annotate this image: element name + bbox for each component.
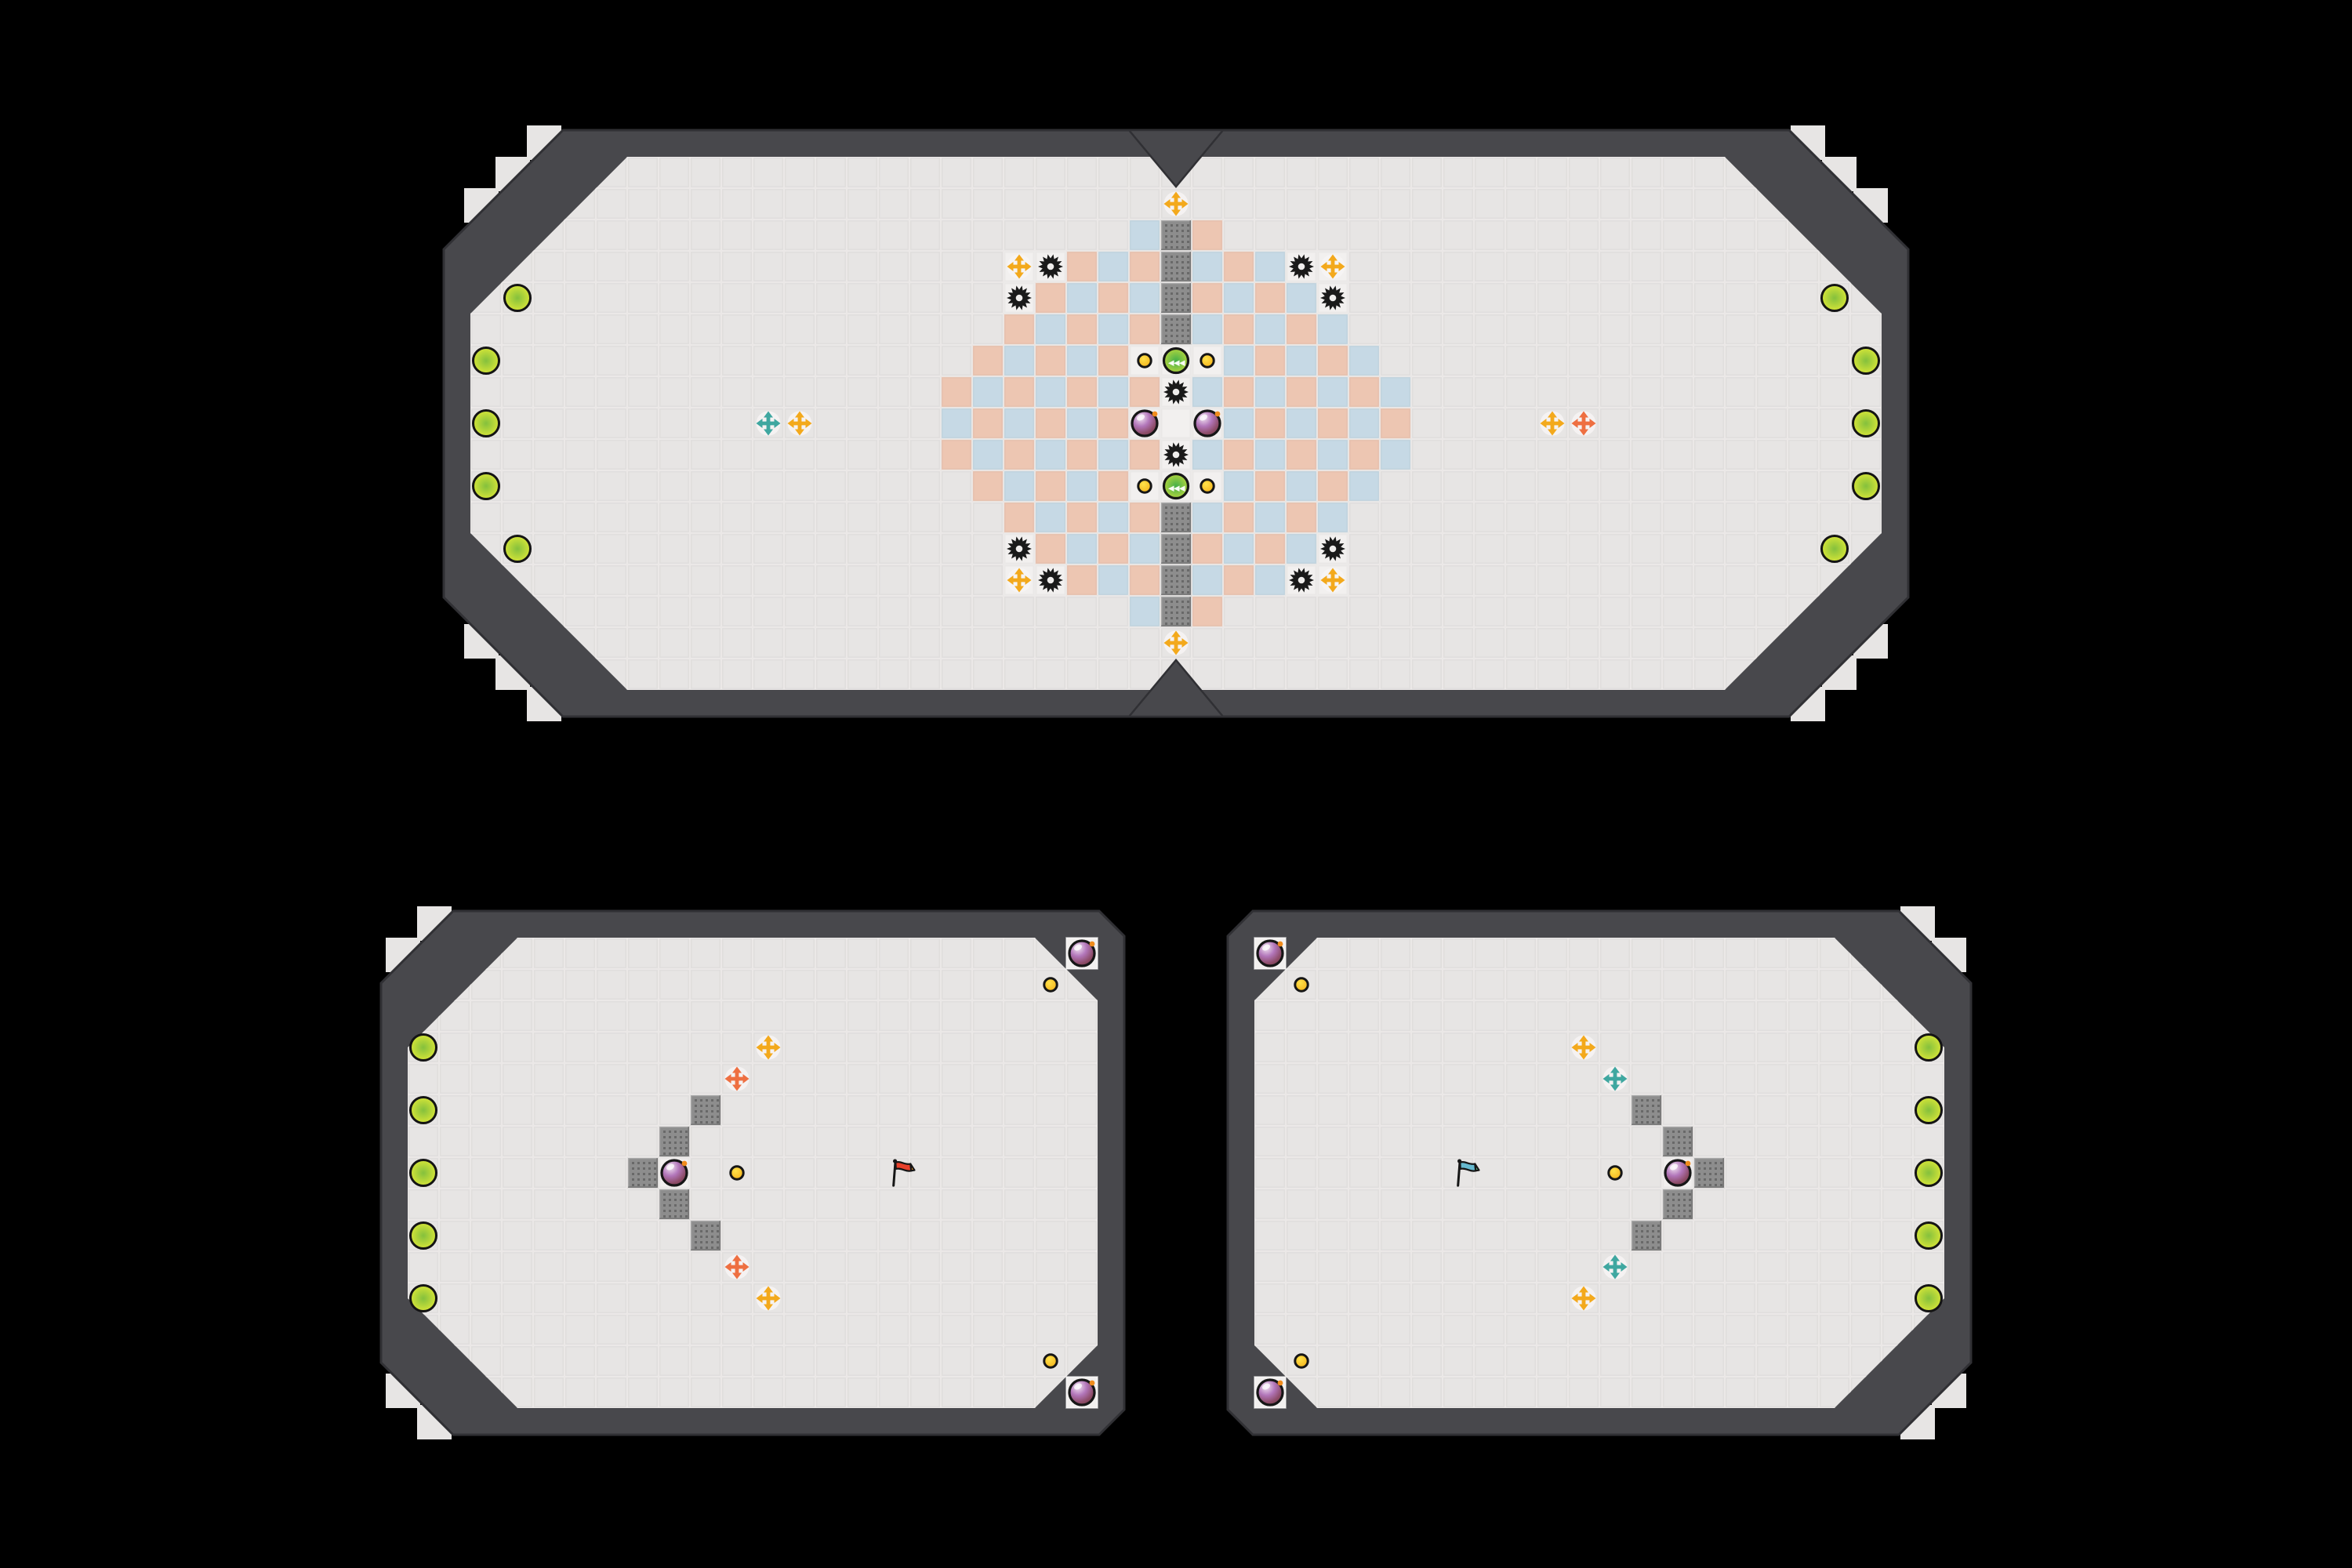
gate-tile [1631,1094,1662,1126]
bomb-icon [662,1160,687,1185]
boost-arrows-icon-yellow [1321,568,1345,593]
arena-floor [1254,938,1944,1408]
gate-tile [1160,564,1192,596]
boost-pad-icon [1853,348,1879,374]
boost-pad-icon [1822,536,1848,562]
maps-canvas [0,0,2352,1568]
boost-arrows-icon-teal [757,412,781,436]
boost-pad-icon [1822,285,1848,311]
gate-tile [1160,220,1192,251]
pellet-icon [1295,1355,1308,1367]
boost-arrows-icon-orange [1572,412,1596,436]
boost-pad-icon [411,1098,437,1123]
bomb-icon [1195,411,1220,436]
boost-arrows-icon-yellow [1541,412,1565,436]
powerup-icon [1164,474,1189,499]
gate-tile [690,1220,721,1251]
corner-pocket [1066,1377,1098,1408]
map-preview-arena-left[interactable] [381,906,1124,1439]
maps-gallery [0,0,2352,1568]
bomb-icon [1132,411,1157,436]
boost-arrows-icon-teal [1603,1067,1628,1091]
pellet-icon [1044,1355,1057,1367]
gate-tile [659,1189,690,1220]
boost-arrows-icon-yellow [1164,631,1189,655]
pellet-icon [1201,480,1214,492]
map-preview-arena-right[interactable] [1228,906,1971,1439]
gate-tile [1160,533,1192,564]
boost-pad-icon [1916,1160,1942,1186]
boost-arrows-icon-yellow [1572,1287,1596,1311]
gate-tile [1662,1126,1693,1157]
pellet-icon [1044,978,1057,991]
gate-tile [659,1126,690,1157]
boost-arrows-icon-yellow [1321,255,1345,279]
boost-pad-icon [505,536,531,562]
pellet-icon [1201,354,1214,367]
boost-pad-icon [505,285,531,311]
corner-pocket [1066,938,1098,969]
boost-pad-icon [1853,474,1879,499]
bomb-icon [1665,1160,1690,1185]
powerup-icon [1164,349,1189,373]
gate-tile [1160,282,1192,314]
bomb-icon [1069,941,1094,966]
gate-tile [1631,1220,1662,1251]
bomb-icon [1258,1380,1283,1405]
boost-pad-icon [411,1160,437,1186]
boost-pad-icon [1916,1286,1942,1312]
boost-arrows-icon-orange [725,1067,750,1091]
pellet-icon [731,1167,743,1179]
bomb-icon [1069,1380,1094,1405]
gate-tile [1160,596,1192,627]
boost-arrows-icon-yellow [1164,192,1189,216]
pellet-icon [1295,978,1308,991]
boost-arrows-icon-yellow [1007,255,1032,279]
gate-tile [1160,314,1192,345]
boost-pad-icon [1853,411,1879,437]
pellet-icon [1138,480,1151,492]
boost-pad-icon [411,1286,437,1312]
arena-floor [408,938,1098,1408]
gate-tile [1160,251,1192,282]
arena-floor [470,157,1882,690]
boost-pad-icon [1916,1223,1942,1249]
gate-tile [627,1157,659,1189]
boost-pad-icon [411,1223,437,1249]
boost-pad-icon [474,411,499,437]
boost-pad-icon [474,474,499,499]
boost-arrows-icon-yellow [757,1287,781,1311]
map-preview-arena-large[interactable] [444,125,1908,721]
boost-arrows-icon-yellow [757,1036,781,1060]
bomb-icon [1258,941,1283,966]
boost-arrows-icon-yellow [788,412,812,436]
boost-arrows-icon-orange [725,1255,750,1279]
gate-tile [1662,1189,1693,1220]
boost-pad-icon [1916,1035,1942,1061]
boost-arrows-icon-yellow [1007,568,1032,593]
corner-pocket [1254,938,1286,969]
gate-tile [1160,502,1192,533]
gate-tile [690,1094,721,1126]
gate-tile [1693,1157,1725,1189]
corner-pocket [1254,1377,1286,1408]
pellet-icon [1609,1167,1621,1179]
boost-pad-icon [1916,1098,1942,1123]
boost-arrows-icon-yellow [1572,1036,1596,1060]
pellet-icon [1138,354,1151,367]
boost-pad-icon [474,348,499,374]
boost-arrows-icon-teal [1603,1255,1628,1279]
boost-pad-icon [411,1035,437,1061]
